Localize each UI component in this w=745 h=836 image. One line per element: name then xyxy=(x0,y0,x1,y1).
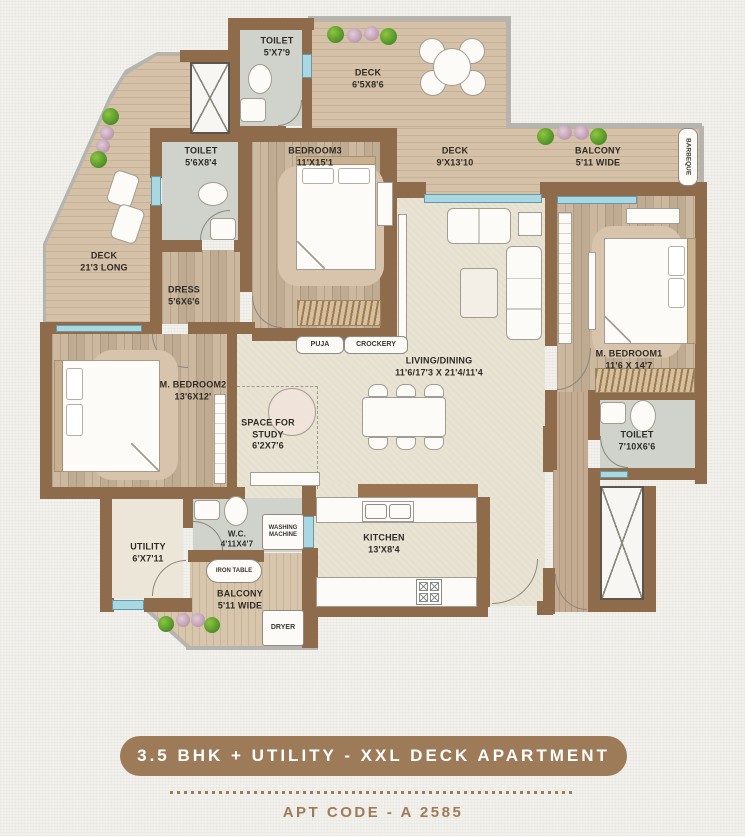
dining-chair xyxy=(368,437,388,450)
wall-segment xyxy=(240,250,252,292)
wall-segment xyxy=(537,601,553,615)
toilet-wc xyxy=(248,64,272,94)
bed-bench xyxy=(588,252,596,330)
wall-segment xyxy=(180,50,230,62)
kitchen-sink xyxy=(362,501,414,522)
wash-basin xyxy=(600,402,626,424)
plant-icon xyxy=(590,128,607,145)
bed-pillow xyxy=(668,246,685,276)
wall-segment xyxy=(150,142,162,178)
plant-icon xyxy=(90,151,107,168)
parapet-balcony-bottom xyxy=(186,646,318,650)
parapet-top-right-step xyxy=(506,16,511,128)
room-label-deck-top: DECK6'5X8'6 xyxy=(352,67,384,90)
plant-icon xyxy=(574,125,589,140)
room-label-m-bedroom-1: M. BEDROOM111'6 X 14'7 xyxy=(596,348,663,371)
window xyxy=(302,54,312,78)
wall-segment xyxy=(150,248,162,334)
wash-basin xyxy=(240,98,266,122)
plant-icon xyxy=(102,108,119,125)
wall-segment xyxy=(392,182,426,198)
apt-code: APT CODE - A 2585 xyxy=(283,804,464,821)
sink-bowl xyxy=(389,504,411,519)
toilet-wc xyxy=(224,496,248,526)
plant-icon xyxy=(557,125,572,140)
plant-icon xyxy=(204,617,220,633)
kitchen-hob xyxy=(416,579,442,605)
tv-console xyxy=(398,214,407,346)
wall-segment xyxy=(188,322,255,334)
room-label-toilet-2: TOILET5'6X8'4 xyxy=(184,145,217,168)
room-label-deck-left: DECK21'3 LONG xyxy=(80,250,127,273)
parapet-right-edge xyxy=(699,126,704,188)
bedroom-2-wardrobe xyxy=(214,394,226,484)
plant-icon xyxy=(158,616,174,632)
dotted-divider xyxy=(170,791,576,794)
dining-table xyxy=(362,397,446,437)
plant-icon xyxy=(191,613,205,627)
sofa-three-seat xyxy=(506,246,542,340)
bed-pillow xyxy=(668,278,685,308)
wall-segment xyxy=(545,196,557,346)
wardrobe-hangers xyxy=(297,300,381,326)
wall-segment xyxy=(588,478,600,612)
wall-segment xyxy=(588,400,600,440)
washing-machine: WASHING MACHINE xyxy=(262,514,304,550)
parapet-top xyxy=(308,16,510,21)
bedside-table xyxy=(377,182,393,226)
bed-fold xyxy=(131,443,159,471)
shaft-top xyxy=(190,62,230,134)
window xyxy=(56,325,142,332)
bedroom-1-wardrobe xyxy=(558,212,572,344)
wall-segment xyxy=(228,18,314,30)
room-label-dress: DRESS5'6X6'6 xyxy=(168,284,200,307)
window xyxy=(557,196,637,204)
toilet-wc xyxy=(630,400,656,432)
dresser xyxy=(626,208,680,224)
wall-segment xyxy=(144,598,192,612)
bed-fold xyxy=(605,316,631,343)
barbeque: BARBEQUE xyxy=(678,128,698,186)
burner-icon xyxy=(430,593,439,602)
toilet-wc xyxy=(198,182,228,206)
wall-segment xyxy=(183,498,193,528)
room-label-study: SPACE FOR STUDY6'2X7'6 xyxy=(238,417,298,452)
plant-icon xyxy=(100,126,114,140)
room-label-kitchen: KITCHEN13'X8'4 xyxy=(363,532,404,555)
bed-pillow xyxy=(66,404,83,436)
wall-segment xyxy=(227,334,237,489)
wall-segment xyxy=(695,182,707,484)
room-label-bedroom-3: BEDROOM311'X15'1 xyxy=(288,145,342,168)
wash-basin xyxy=(210,218,236,240)
deck-table xyxy=(433,48,471,86)
kitchen-counter-bottom xyxy=(316,577,477,607)
sink-bowl xyxy=(365,504,387,519)
dining-chair xyxy=(424,437,444,450)
window xyxy=(112,600,144,610)
wall-segment xyxy=(302,78,312,128)
room-label-wc: W.C.4'11X4'7 xyxy=(221,530,254,551)
dining-chair xyxy=(368,384,388,397)
bed-pillow xyxy=(302,168,334,184)
burner-icon xyxy=(419,582,428,591)
coffee-table xyxy=(460,268,498,318)
burner-icon xyxy=(430,582,439,591)
wall-segment xyxy=(543,426,553,472)
window xyxy=(303,516,314,548)
wall-segment xyxy=(588,600,656,612)
room-label-m-bedroom-2: M. BEDROOM213'6X12' xyxy=(160,379,227,402)
room-label-balcony-top: BALCONY5'11 WIDE xyxy=(575,145,621,168)
crockery-cabinet: CROCKERY xyxy=(344,336,408,354)
wall-segment xyxy=(477,497,490,607)
kitchen-counter-brown xyxy=(358,484,478,498)
iron-table: IRON TABLE xyxy=(206,559,262,583)
wall-segment xyxy=(40,487,245,499)
plant-icon xyxy=(347,28,362,43)
wall-segment xyxy=(302,30,312,56)
sofa-two-seat xyxy=(447,208,511,244)
wash-basin xyxy=(194,500,220,520)
title-banner: 3.5 BHK + UTILITY - XXL DECK APARTMENT xyxy=(120,736,627,776)
wall-segment xyxy=(644,486,656,612)
wall-segment xyxy=(40,322,52,499)
dining-chair xyxy=(396,437,416,450)
window xyxy=(151,176,161,206)
room-label-toilet-top: TOILET5'X7'9 xyxy=(260,35,293,58)
wall-segment xyxy=(100,487,112,602)
bed-headboard xyxy=(687,238,696,344)
room-label-utility: UTILITY6'X7'11 xyxy=(130,541,165,564)
room-label-deck-mid: DECK9'X13'10 xyxy=(437,145,474,168)
puja-cabinet: PUJA xyxy=(296,336,344,354)
wardrobe-hangers xyxy=(595,368,695,393)
bed-fold xyxy=(297,241,325,269)
burner-icon xyxy=(419,593,428,602)
wall-segment xyxy=(250,128,397,142)
bed-pillow xyxy=(338,168,370,184)
room-label-living: LIVING/DINING11'6/17'3 X 21'4/11'4 xyxy=(395,355,483,378)
bed-headboard xyxy=(54,360,63,472)
window xyxy=(600,471,628,478)
shaft-bottom-right xyxy=(600,486,644,600)
plant-icon xyxy=(364,26,379,41)
wall-segment xyxy=(238,128,252,252)
dryer: DRYER xyxy=(262,610,304,646)
plant-icon xyxy=(537,128,554,145)
room-label-toilet-right: TOILET7'10X6'6 xyxy=(619,429,656,452)
bed-pillow xyxy=(66,368,83,400)
window xyxy=(424,194,542,203)
parapet-balcony-top xyxy=(506,123,702,128)
plant-icon xyxy=(327,26,344,43)
study-desk xyxy=(250,472,320,486)
plant-icon xyxy=(380,28,397,45)
dining-chair xyxy=(396,384,416,397)
room-label-balcony-bottom: BALCONY5'11 WIDE xyxy=(217,588,263,611)
plant-icon xyxy=(176,613,190,627)
dining-chair xyxy=(424,384,444,397)
side-table xyxy=(518,212,542,236)
floor-plan-page: PUJA CROCKERY WASHING MACHINE IRON TABLE… xyxy=(0,0,745,836)
